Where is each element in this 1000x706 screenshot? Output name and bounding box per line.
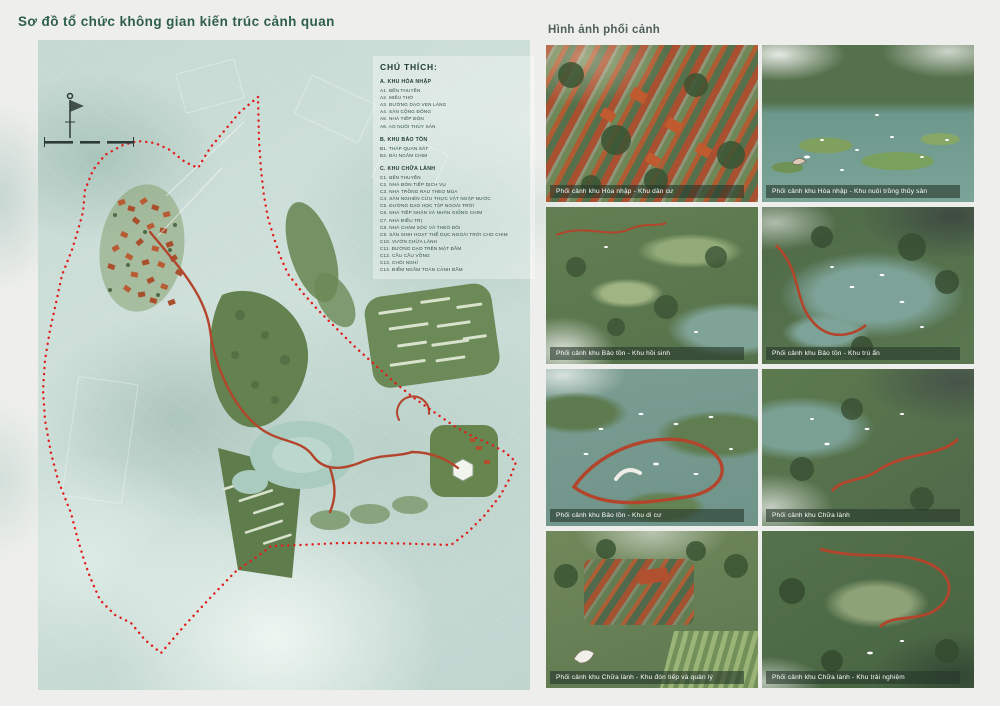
legend-item: B1. THÁP QUAN SÁT <box>380 145 528 152</box>
render-caption: Phối cảnh khu Chữa lành <box>766 509 960 522</box>
north-arrow <box>65 94 84 139</box>
render-image <box>546 207 758 364</box>
render-caption: Phối cảnh khu Hòa nhập - Khu nuôi trồng … <box>766 185 960 198</box>
legend-item: C12. CẦU CẦU VỒNG <box>380 252 528 259</box>
legend-item: A1. BẾN THUYỀN <box>380 87 528 94</box>
page-title: Sơ đồ tổ chức không gian kiến trúc cảnh … <box>18 14 335 29</box>
render-image <box>546 369 758 526</box>
legend-item: C14. ĐIỂM NGẮM TOÀN CẢNH ĐẦM <box>380 266 528 273</box>
legend-item: C3. NHÀ TRỒNG RAU THEO MÙA <box>380 188 528 195</box>
legend-item: C6. NHÀ TIẾP NHẬN VÀ NHÂN GIỐNG CHIM <box>380 209 528 216</box>
legend-item: C2. NHÀ ĐÓN TIẾP DỊCH VỤ <box>380 181 528 188</box>
legend-item: B2. ĐÀI NGẮM CHIM <box>380 152 528 159</box>
legend-item: C7. NHÀ ĐIỀU TRỊ <box>380 217 528 224</box>
legend-item: A4. SÂN CỘNG ĐỒNG <box>380 108 528 115</box>
legend-item: A2. MIẾU THỜ <box>380 94 528 101</box>
legend-item: C1. BẾN THUYỀN <box>380 174 528 181</box>
legend-item: C5. ĐƯỜNG DẠO HỌC TẬP NGOÀI TRỜI <box>380 202 528 209</box>
render-image <box>546 531 758 688</box>
legend-item: C11. ĐƯỜNG DẠO TRÊN MẶT ĐẦM <box>380 245 528 252</box>
render-thumbnail-bao-ton-hoi-sinh: Phối cảnh khu Bảo tồn - Khu hồi sinh <box>546 207 758 364</box>
render-image <box>762 531 974 688</box>
legend-section-a: A. KHU HÒA NHẬP <box>380 79 528 85</box>
legend: CHÚ THÍCH: A. KHU HÒA NHẬP A1. BẾN THUYỀ… <box>373 56 535 279</box>
legend-section-c: C. KHU CHỮA LÀNH <box>380 166 528 172</box>
render-thumbnail-bao-ton-di-cu: Phối cảnh khu Bảo tồn - Khu di cư <box>546 369 758 526</box>
render-image <box>762 369 974 526</box>
render-image <box>762 45 974 202</box>
render-thumbnail-hoa-nhap-dan-cu: Phối cảnh khu Hòa nhập - Khu dân cư <box>546 45 758 202</box>
legend-item: A3. ĐƯỜNG DẠO VEN LÀNG <box>380 101 528 108</box>
master-plan-map: CHÚ THÍCH: A. KHU HÒA NHẬP A1. BẾN THUYỀ… <box>38 40 530 690</box>
legend-item: C13. CHÒI NGHỈ <box>380 259 528 266</box>
render-image <box>546 45 758 202</box>
renders-section-title: Hình ảnh phối cảnh <box>548 24 660 36</box>
render-caption: Phối cảnh khu Bảo tồn - Khu hồi sinh <box>550 347 744 360</box>
legend-item: A5. NHÀ TIẾP ĐÓN <box>380 115 528 122</box>
render-caption: Phối cảnh khu Hòa nhập - Khu dân cư <box>550 185 744 198</box>
render-grid: Phối cảnh khu Hòa nhập - Khu dân cư Phối… <box>546 45 974 688</box>
render-caption: Phối cảnh khu Chữa lành - Khu đón tiếp v… <box>550 671 744 684</box>
render-thumbnail-chua-lanh: Phối cảnh khu Chữa lành <box>762 369 974 526</box>
render-thumbnail-hoa-nhap-thuy-san: Phối cảnh khu Hòa nhập - Khu nuôi trồng … <box>762 45 974 202</box>
render-thumbnail-bao-ton-tru-an: Phối cảnh khu Bảo tồn - Khu trú ẩn <box>762 207 974 364</box>
legend-item: C8. NHÀ CHĂM SÓC VÀ THEO DÕI <box>380 224 528 231</box>
legend-item: C4. SÂN NGHIÊN CỨU THỰC VẬT NGẬP NƯỚC <box>380 195 528 202</box>
legend-section-b: B. KHU BẢO TỒN <box>380 137 528 143</box>
render-image <box>762 207 974 364</box>
legend-item: A6. AO NUÔI THỦY SẢN <box>380 123 528 130</box>
scale-bar <box>44 137 134 147</box>
render-caption: Phối cảnh khu Chữa lành - Khu trải nghiệ… <box>766 671 960 684</box>
render-caption: Phối cảnh khu Bảo tồn - Khu trú ẩn <box>766 347 960 360</box>
legend-title: CHÚ THÍCH: <box>380 62 528 72</box>
render-thumbnail-chua-lanh-trai-nghiem: Phối cảnh khu Chữa lành - Khu trải nghiệ… <box>762 531 974 688</box>
render-thumbnail-chua-lanh-don-tiep: Phối cảnh khu Chữa lành - Khu đón tiếp v… <box>546 531 758 688</box>
render-caption: Phối cảnh khu Bảo tồn - Khu di cư <box>550 509 744 522</box>
legend-item: C10. VƯỜN CHỮA LÀNH <box>380 238 528 245</box>
legend-item: C9. SÂN SINH HOẠT THỂ DỤC NGOÀI TRỜI CHO… <box>380 231 528 238</box>
